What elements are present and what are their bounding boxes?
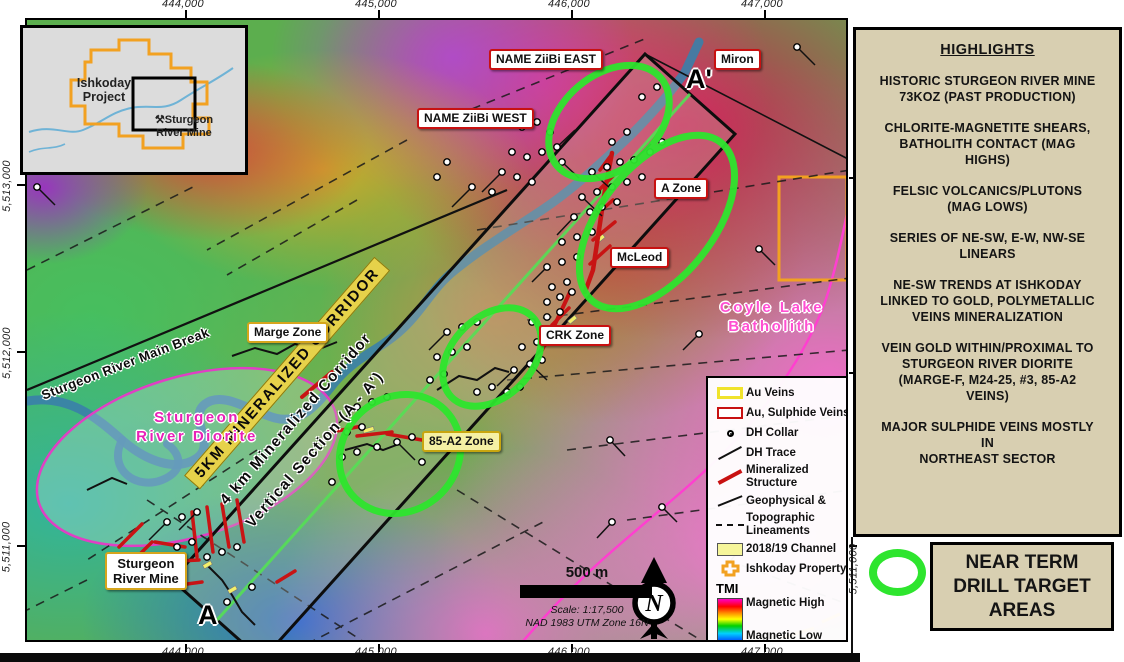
legend-label: Au Veins: [746, 387, 795, 400]
scale-ratio: Scale: 1:17,500: [527, 604, 647, 616]
scale-bar: [520, 585, 652, 598]
bottom-bar: [0, 653, 860, 662]
axis-label-top: 446,000: [548, 0, 590, 10]
axis-label-left: 5,512,000: [1, 327, 13, 379]
tmi-color-ramp: [717, 598, 743, 642]
highlight-item: CHLORITE-MAGNETITE SHEARS, BATHOLITH CON…: [864, 120, 1111, 168]
highlights-title: HIGHLIGHTS: [864, 42, 1111, 58]
highlight-item: VEIN GOLD WITHIN/PROXIMAL TO STURGEON RI…: [864, 340, 1111, 404]
axis-tick: [571, 10, 573, 18]
inset-mine-text: Sturgeon River Mine: [156, 114, 213, 139]
channel-swatch: [717, 543, 743, 556]
legend-label: Topographic Lineaments: [746, 512, 848, 538]
legend-row-channel: 2018/19 Channel: [714, 539, 848, 559]
dh-trace-icon: [718, 446, 742, 460]
drill-target-legend-ellipse: [869, 549, 926, 596]
legend-row-dh-trace: DH Trace: [714, 443, 848, 463]
legend-tmi-label: TMI: [716, 581, 848, 596]
near-term-drill-target-box: NEAR TERM DRILL TARGET AREAS: [930, 542, 1114, 631]
label-sturgeon-river-mine: Sturgeon River Mine: [105, 552, 187, 590]
property-blob-icon: [717, 559, 743, 579]
inset-project-label: Ishkoday Project: [63, 76, 145, 104]
section-marker-a: A: [198, 600, 218, 631]
label-name-ziibi-west: NAME ZiiBi WEST: [417, 108, 534, 129]
mineralized-structure-icon: [718, 469, 743, 485]
dh-collar-icon: [727, 430, 734, 437]
axis-tick: [17, 351, 25, 353]
highlight-item: FELSIC VOLCANICS/PLUTONS (MAG LOWS): [864, 183, 1111, 215]
label-a-zone: A Zone: [654, 178, 708, 199]
axis-tick: [764, 10, 766, 18]
axis-tick: [17, 184, 25, 186]
axis-label-left: 5,511,000: [0, 522, 12, 573]
legend-row-topographic: Topographic Lineaments: [714, 511, 848, 539]
axis-label-top: 444,000: [162, 0, 204, 10]
legend-label: Ishkoday Property: [746, 563, 846, 576]
label-coyle-lake-batholith: Coyle Lake Batholith: [682, 298, 848, 336]
label-miron: Miron: [714, 49, 761, 70]
au-veins-swatch: [717, 387, 743, 399]
legend-label: Geophysical &: [746, 495, 826, 508]
location-inset-map: Ishkoday Project ⚒Sturgeon River Mine: [20, 25, 248, 175]
section-marker-a-prime: A': [686, 64, 712, 95]
highlights-panel: HIGHLIGHTS HISTORIC STURGEON RIVER MINE …: [853, 27, 1122, 537]
legend-label: 2018/19 Channel: [746, 543, 836, 556]
geophysical-line-icon: [718, 495, 743, 506]
axis-tick: [17, 545, 25, 547]
legend-label-magnetic-high: Magnetic High: [746, 597, 825, 610]
label-sturgeon-river-diorite: Sturgeon River Diorite: [107, 408, 287, 446]
label-mcleod: McLeod: [610, 247, 669, 268]
legend-label: DH Trace: [746, 447, 796, 460]
highlight-item: MAJOR SULPHIDE VEINS MOSTLY IN NORTHEAST…: [864, 419, 1111, 467]
legend-row-au-sulphide: Au, Sulphide Veins: [714, 403, 848, 423]
highlight-item: SERIES OF NE-SW, E-W, NW-SE LINEARS: [864, 230, 1111, 262]
highlight-item: NE-SW TRENDS AT ISHKODAY LINKED TO GOLD,…: [864, 277, 1111, 325]
legend-label-magnetic-low: Magnetic Low: [746, 630, 825, 642]
legend-label: Mineralized Structure: [746, 464, 848, 490]
label-name-ziibi-east: NAME ZiiBi EAST: [489, 49, 603, 70]
label-crk-zone: CRK Zone: [539, 325, 611, 346]
legend-label: DH Collar: [746, 427, 798, 440]
legend-row-tmi-ramp: Magnetic High Magnetic Low: [714, 596, 848, 642]
legend-row-au-veins: Au Veins: [714, 383, 848, 403]
lineament-dash-icon: [716, 524, 744, 526]
slide: N 5KM MINERALIZED CORRIDOR 4 km Minerali…: [0, 0, 1124, 662]
axis-label-right: 5,511,000: [847, 544, 859, 595]
legend-row-property: Ishkoday Property: [714, 559, 848, 579]
axis-tick: [185, 10, 187, 18]
map-legend: Au Veins Au, Sulphide Veins DH Collar DH…: [706, 376, 848, 642]
legend-row-mineralized: Mineralized Structure: [714, 463, 848, 491]
highlight-item: HISTORIC STURGEON RIVER MINE 73KOZ (PAST…: [864, 73, 1111, 105]
legend-row-dh-collar: DH Collar: [714, 423, 848, 443]
axis-tick: [378, 10, 380, 18]
legend-label: Au, Sulphide Veins: [746, 407, 848, 420]
scale-datum: NAD 1983 UTM Zone 16N: [507, 617, 667, 629]
legend-row-geophysical: Geophysical &: [714, 491, 848, 511]
axis-label-left: 5,513,000: [1, 160, 13, 212]
mine-pick-icon: ⚒: [155, 114, 165, 126]
axis-label-top: 447,000: [741, 0, 783, 10]
inset-mine-label: ⚒Sturgeon River Mine: [141, 114, 227, 140]
label-marge-zone: Marge Zone: [247, 322, 328, 343]
label-85-a2-zone: 85-A2 Zone: [422, 431, 501, 452]
scale-distance: 500 m: [547, 564, 627, 581]
axis-label-top: 445,000: [355, 0, 397, 10]
frame-line: [851, 537, 853, 655]
au-sulphide-swatch: [717, 407, 743, 419]
